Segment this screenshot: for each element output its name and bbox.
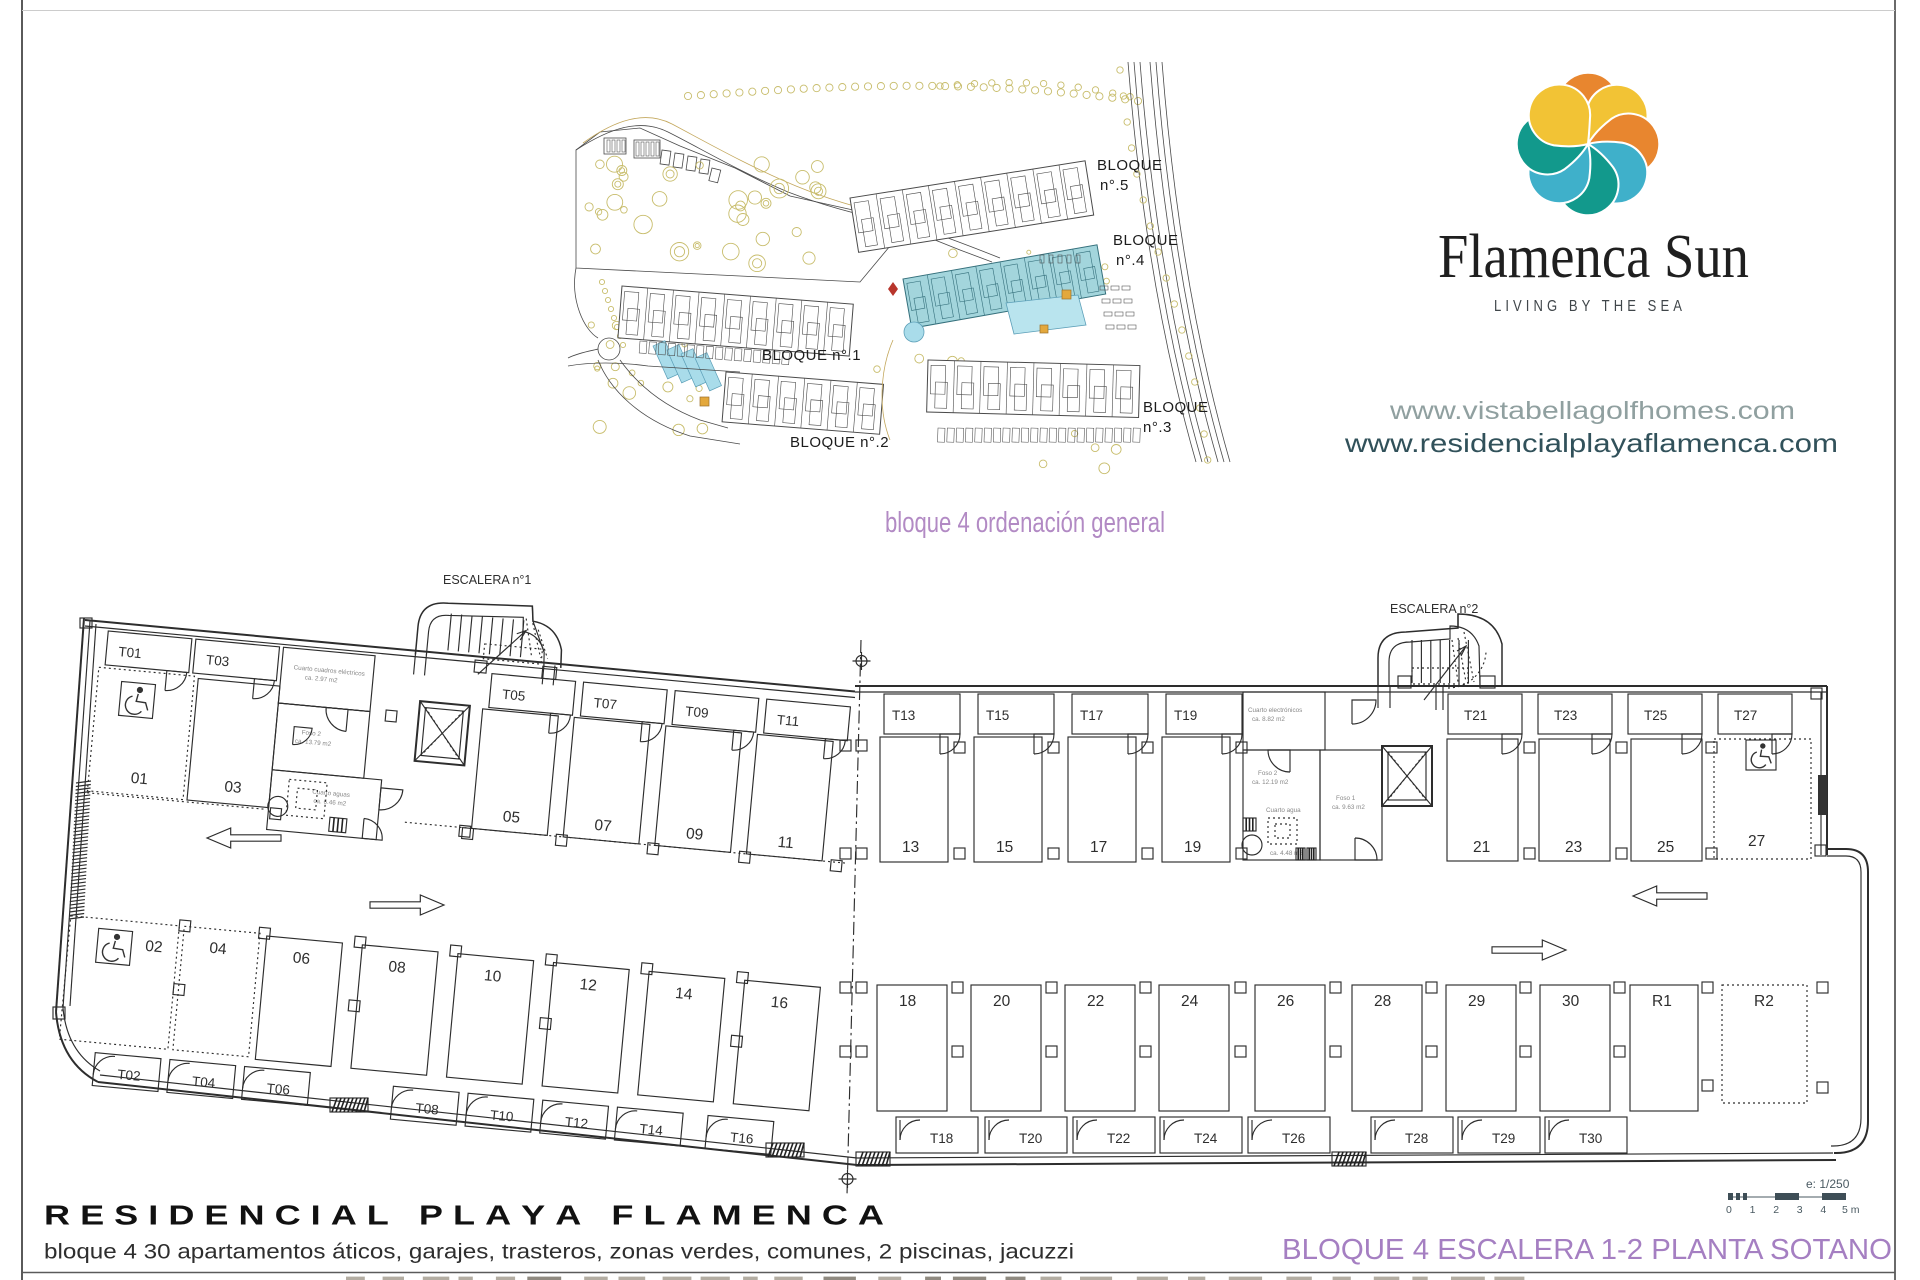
svg-text:3: 3 <box>1797 1204 1803 1216</box>
svg-text:03: 03 <box>224 778 243 797</box>
svg-text:BLOQUE n°.2: BLOQUE n°.2 <box>790 434 889 451</box>
svg-text:T08: T08 <box>415 1100 440 1117</box>
svg-text:T06: T06 <box>266 1081 291 1098</box>
svg-text:T09: T09 <box>685 704 710 721</box>
svg-text:n°.5: n°.5 <box>1100 177 1129 194</box>
svg-text:R E S I D E N C I A L P L A: R E S I D E N C I A L P L A Y A F L A M … <box>44 1200 884 1231</box>
svg-text:ESCALERA n°1: ESCALERA n°1 <box>443 573 531 587</box>
svg-text:Cuarto electrónicos: Cuarto electrónicos <box>1248 707 1302 714</box>
svg-text:09: 09 <box>685 825 704 844</box>
svg-text:T26: T26 <box>1282 1131 1305 1146</box>
svg-text:11: 11 <box>777 834 795 852</box>
svg-text:T25: T25 <box>1644 708 1667 723</box>
svg-text:5 m: 5 m <box>1842 1204 1860 1216</box>
svg-text:12: 12 <box>579 976 598 995</box>
svg-text:T27: T27 <box>1734 708 1757 723</box>
svg-text:05: 05 <box>502 808 521 827</box>
svg-text:04: 04 <box>209 940 228 959</box>
svg-text:T07: T07 <box>593 695 618 712</box>
svg-text:ca. 9.63 m2: ca. 9.63 m2 <box>1332 804 1365 811</box>
svg-text:www.residencialplayaflamenca.c: www.residencialplayaflamenca.com <box>1344 428 1838 458</box>
svg-text:18: 18 <box>899 993 916 1010</box>
svg-text:e: 1/250: e: 1/250 <box>1806 1177 1850 1191</box>
svg-text:06: 06 <box>292 949 311 968</box>
svg-text:15: 15 <box>996 839 1013 856</box>
svg-text:T29: T29 <box>1492 1131 1515 1146</box>
svg-text:25: 25 <box>1657 839 1674 856</box>
svg-text:T04: T04 <box>191 1074 216 1091</box>
svg-text:T17: T17 <box>1080 708 1103 723</box>
svg-text:Cuarto agua: Cuarto agua <box>1266 807 1301 814</box>
svg-text:bloque 4 ordenación general: bloque 4 ordenación general <box>885 507 1165 539</box>
svg-text:T18: T18 <box>930 1131 953 1146</box>
svg-text:T03: T03 <box>205 652 230 669</box>
svg-text:20: 20 <box>993 993 1011 1010</box>
svg-text:LIVING BY THE SEA: LIVING BY THE SEA <box>1494 298 1686 315</box>
svg-text:T10: T10 <box>490 1107 515 1124</box>
svg-text:n°.3: n°.3 <box>1143 419 1172 436</box>
svg-text:29: 29 <box>1468 993 1485 1010</box>
svg-text:Foso 2: Foso 2 <box>1258 770 1278 777</box>
svg-text:T21: T21 <box>1464 708 1487 723</box>
svg-text:T11: T11 <box>776 712 800 729</box>
svg-text:19: 19 <box>1184 839 1201 856</box>
svg-text:28: 28 <box>1374 993 1391 1010</box>
svg-text:ESCALERA n°2: ESCALERA n°2 <box>1390 602 1478 616</box>
svg-text:T19: T19 <box>1174 708 1197 723</box>
svg-text:R2: R2 <box>1754 993 1774 1010</box>
svg-text:23: 23 <box>1565 839 1582 856</box>
svg-text:T02: T02 <box>117 1067 142 1084</box>
svg-text:BLOQUE: BLOQUE <box>1097 157 1163 174</box>
svg-text:ca. 8.82 m2: ca. 8.82 m2 <box>1252 716 1285 723</box>
svg-text:0: 0 <box>1726 1204 1732 1216</box>
svg-text:T23: T23 <box>1554 708 1577 723</box>
svg-text:10: 10 <box>483 967 502 986</box>
svg-text:www.vistabellagolfhomes.com: www.vistabellagolfhomes.com <box>1389 397 1795 425</box>
svg-text:27: 27 <box>1748 833 1765 850</box>
svg-text:T14: T14 <box>639 1121 664 1138</box>
svg-text:T28: T28 <box>1405 1131 1428 1146</box>
svg-text:22: 22 <box>1087 993 1104 1010</box>
svg-text:T01: T01 <box>118 644 143 661</box>
svg-text:21: 21 <box>1473 839 1490 856</box>
svg-text:08: 08 <box>388 958 407 977</box>
svg-text:T24: T24 <box>1194 1131 1218 1146</box>
svg-text:R1: R1 <box>1652 993 1672 1010</box>
svg-text:13: 13 <box>902 839 919 856</box>
svg-text:17: 17 <box>1090 839 1107 856</box>
svg-text:16: 16 <box>770 994 789 1013</box>
svg-text:Foso 1: Foso 1 <box>1336 795 1356 802</box>
svg-text:T30: T30 <box>1579 1131 1602 1146</box>
svg-text:4: 4 <box>1820 1204 1826 1216</box>
svg-text:2: 2 <box>1773 1204 1779 1216</box>
svg-text:02: 02 <box>145 938 164 957</box>
svg-text:Flamenca Sun: Flamenca Sun <box>1438 223 1749 291</box>
svg-text:1: 1 <box>1750 1204 1756 1216</box>
svg-text:30: 30 <box>1562 993 1580 1010</box>
svg-text:BLOQUE: BLOQUE <box>1113 232 1179 249</box>
svg-text:01: 01 <box>130 770 149 789</box>
svg-text:24: 24 <box>1181 993 1199 1010</box>
svg-text:n°.4: n°.4 <box>1116 252 1145 269</box>
svg-text:T15: T15 <box>986 708 1009 723</box>
svg-text:T05: T05 <box>501 687 526 704</box>
svg-text:T12: T12 <box>564 1114 589 1131</box>
svg-text:BLOQUE n°.1: BLOQUE n°.1 <box>762 347 861 364</box>
svg-text:bloque 4 30 apartamentos ático: bloque 4 30 apartamentos áticos, garajes… <box>44 1241 1074 1264</box>
svg-text:T22: T22 <box>1107 1131 1130 1146</box>
svg-text:BLOQUE 4 ESCALERA 1-2 PLANTA S: BLOQUE 4 ESCALERA 1-2 PLANTA SOTANO <box>1282 1234 1892 1266</box>
svg-text:07: 07 <box>594 817 613 836</box>
svg-text:26: 26 <box>1277 993 1294 1010</box>
svg-text:T16: T16 <box>729 1130 754 1147</box>
svg-text:T20: T20 <box>1019 1131 1042 1146</box>
svg-text:BLOQUE: BLOQUE <box>1143 399 1209 416</box>
svg-text:ca. 12.19 m2: ca. 12.19 m2 <box>1252 779 1289 786</box>
svg-text:14: 14 <box>674 985 693 1004</box>
svg-text:T13: T13 <box>892 708 915 723</box>
